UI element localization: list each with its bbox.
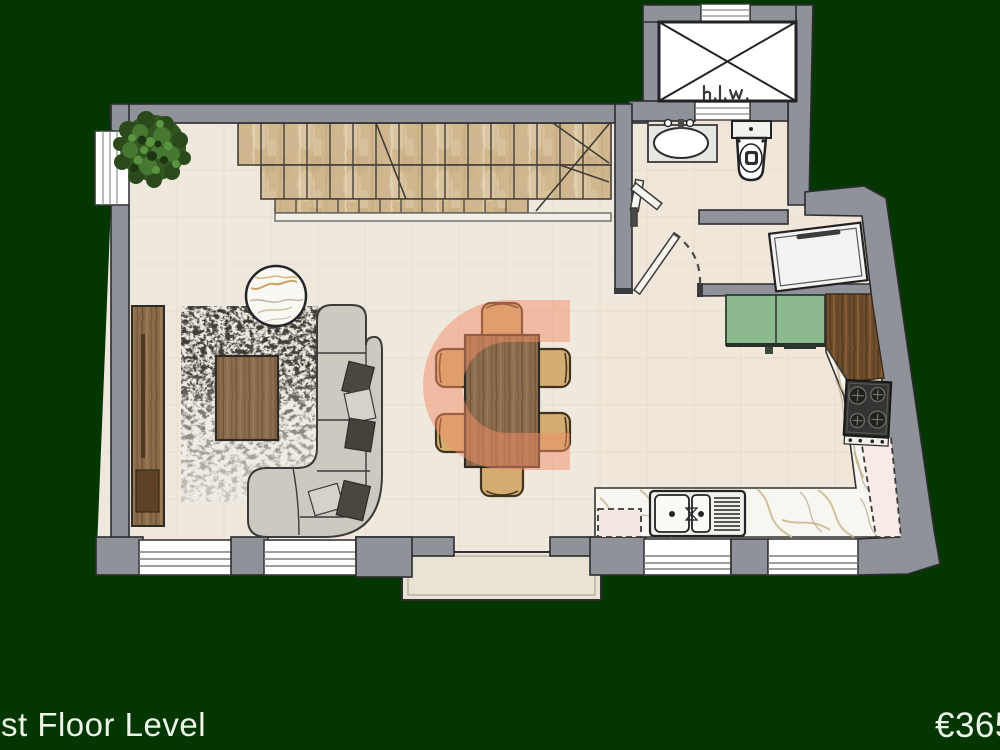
svg-text:First Floor Level: First Floor Level [0, 706, 206, 743]
svg-text:€365,000: €365,000 [935, 706, 1000, 745]
